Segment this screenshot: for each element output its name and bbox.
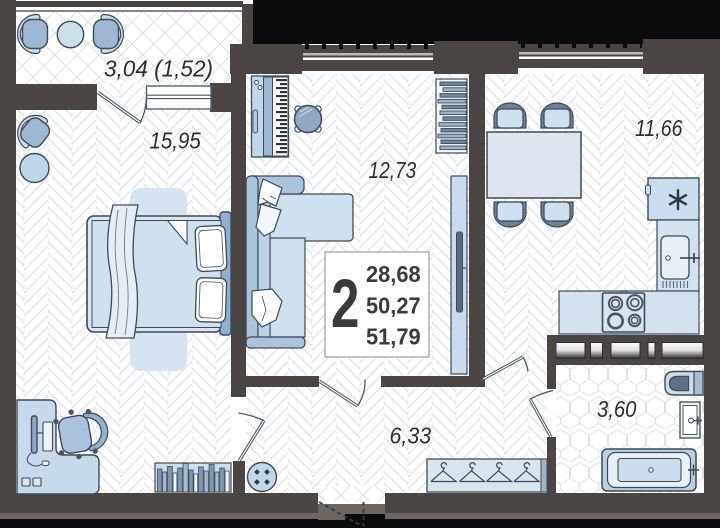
svg-text:15,95: 15,95 bbox=[150, 127, 202, 153]
svg-text:6,33: 6,33 bbox=[390, 423, 432, 449]
svg-text:2: 2 bbox=[331, 264, 359, 341]
svg-text:51,79: 51,79 bbox=[366, 323, 421, 350]
svg-text:28,68: 28,68 bbox=[366, 260, 421, 287]
svg-text:50,27: 50,27 bbox=[366, 292, 421, 319]
svg-text:11,66: 11,66 bbox=[635, 116, 683, 142]
svg-text:3,04 (1,52): 3,04 (1,52) bbox=[104, 55, 213, 81]
svg-text:3,60: 3,60 bbox=[597, 396, 636, 423]
svg-text:12,73: 12,73 bbox=[369, 158, 417, 183]
